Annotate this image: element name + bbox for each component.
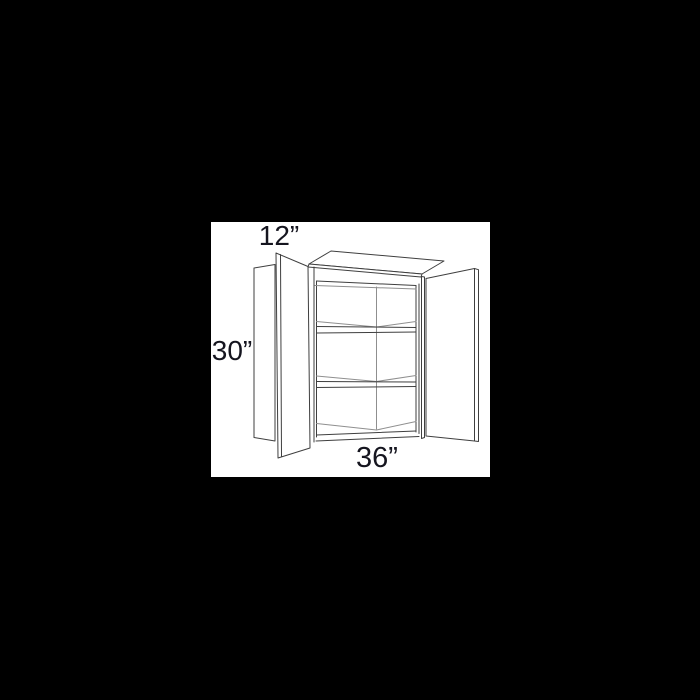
right-door-face [426, 269, 475, 442]
width-dimension-label: 36” [356, 442, 398, 474]
left-side-panel [254, 265, 275, 442]
diagram-stage: 12” 30” 36” [0, 0, 700, 700]
right-door [426, 269, 479, 442]
depth-dimension-label: 12” [259, 220, 299, 251]
right-door-thickness-edge [475, 269, 479, 442]
right-front-corner [422, 277, 425, 439]
left-door [276, 253, 310, 458]
height-dimension-label: 30” [212, 335, 252, 366]
shelf-2-front-top [317, 382, 417, 383]
cabinet-diagram: 12” 30” 36” [0, 0, 700, 700]
